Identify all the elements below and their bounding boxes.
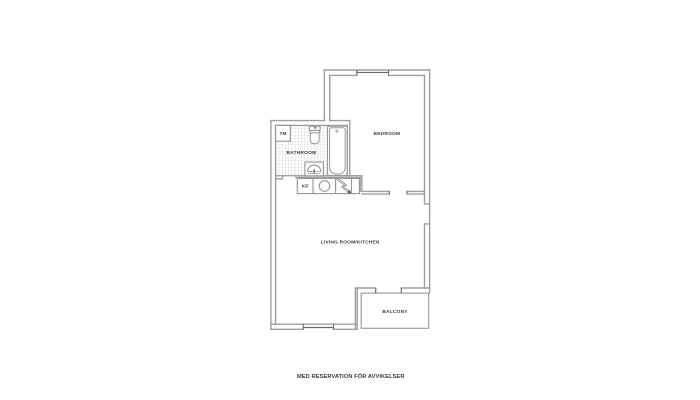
svg-text:BEDROOM: BEDROOM [373,131,400,137]
svg-text:TM: TM [279,131,286,136]
svg-text:BATHROOM: BATHROOM [286,150,316,156]
svg-text:MED RESERVATION FÖR AVVIKELSER: MED RESERVATION FÖR AVVIKELSER [297,373,405,380]
svg-text:K/F: K/F [302,184,309,189]
svg-text:LIVING ROOM/KITCHEN: LIVING ROOM/KITCHEN [321,240,380,246]
svg-text:BALCONY: BALCONY [382,309,408,315]
